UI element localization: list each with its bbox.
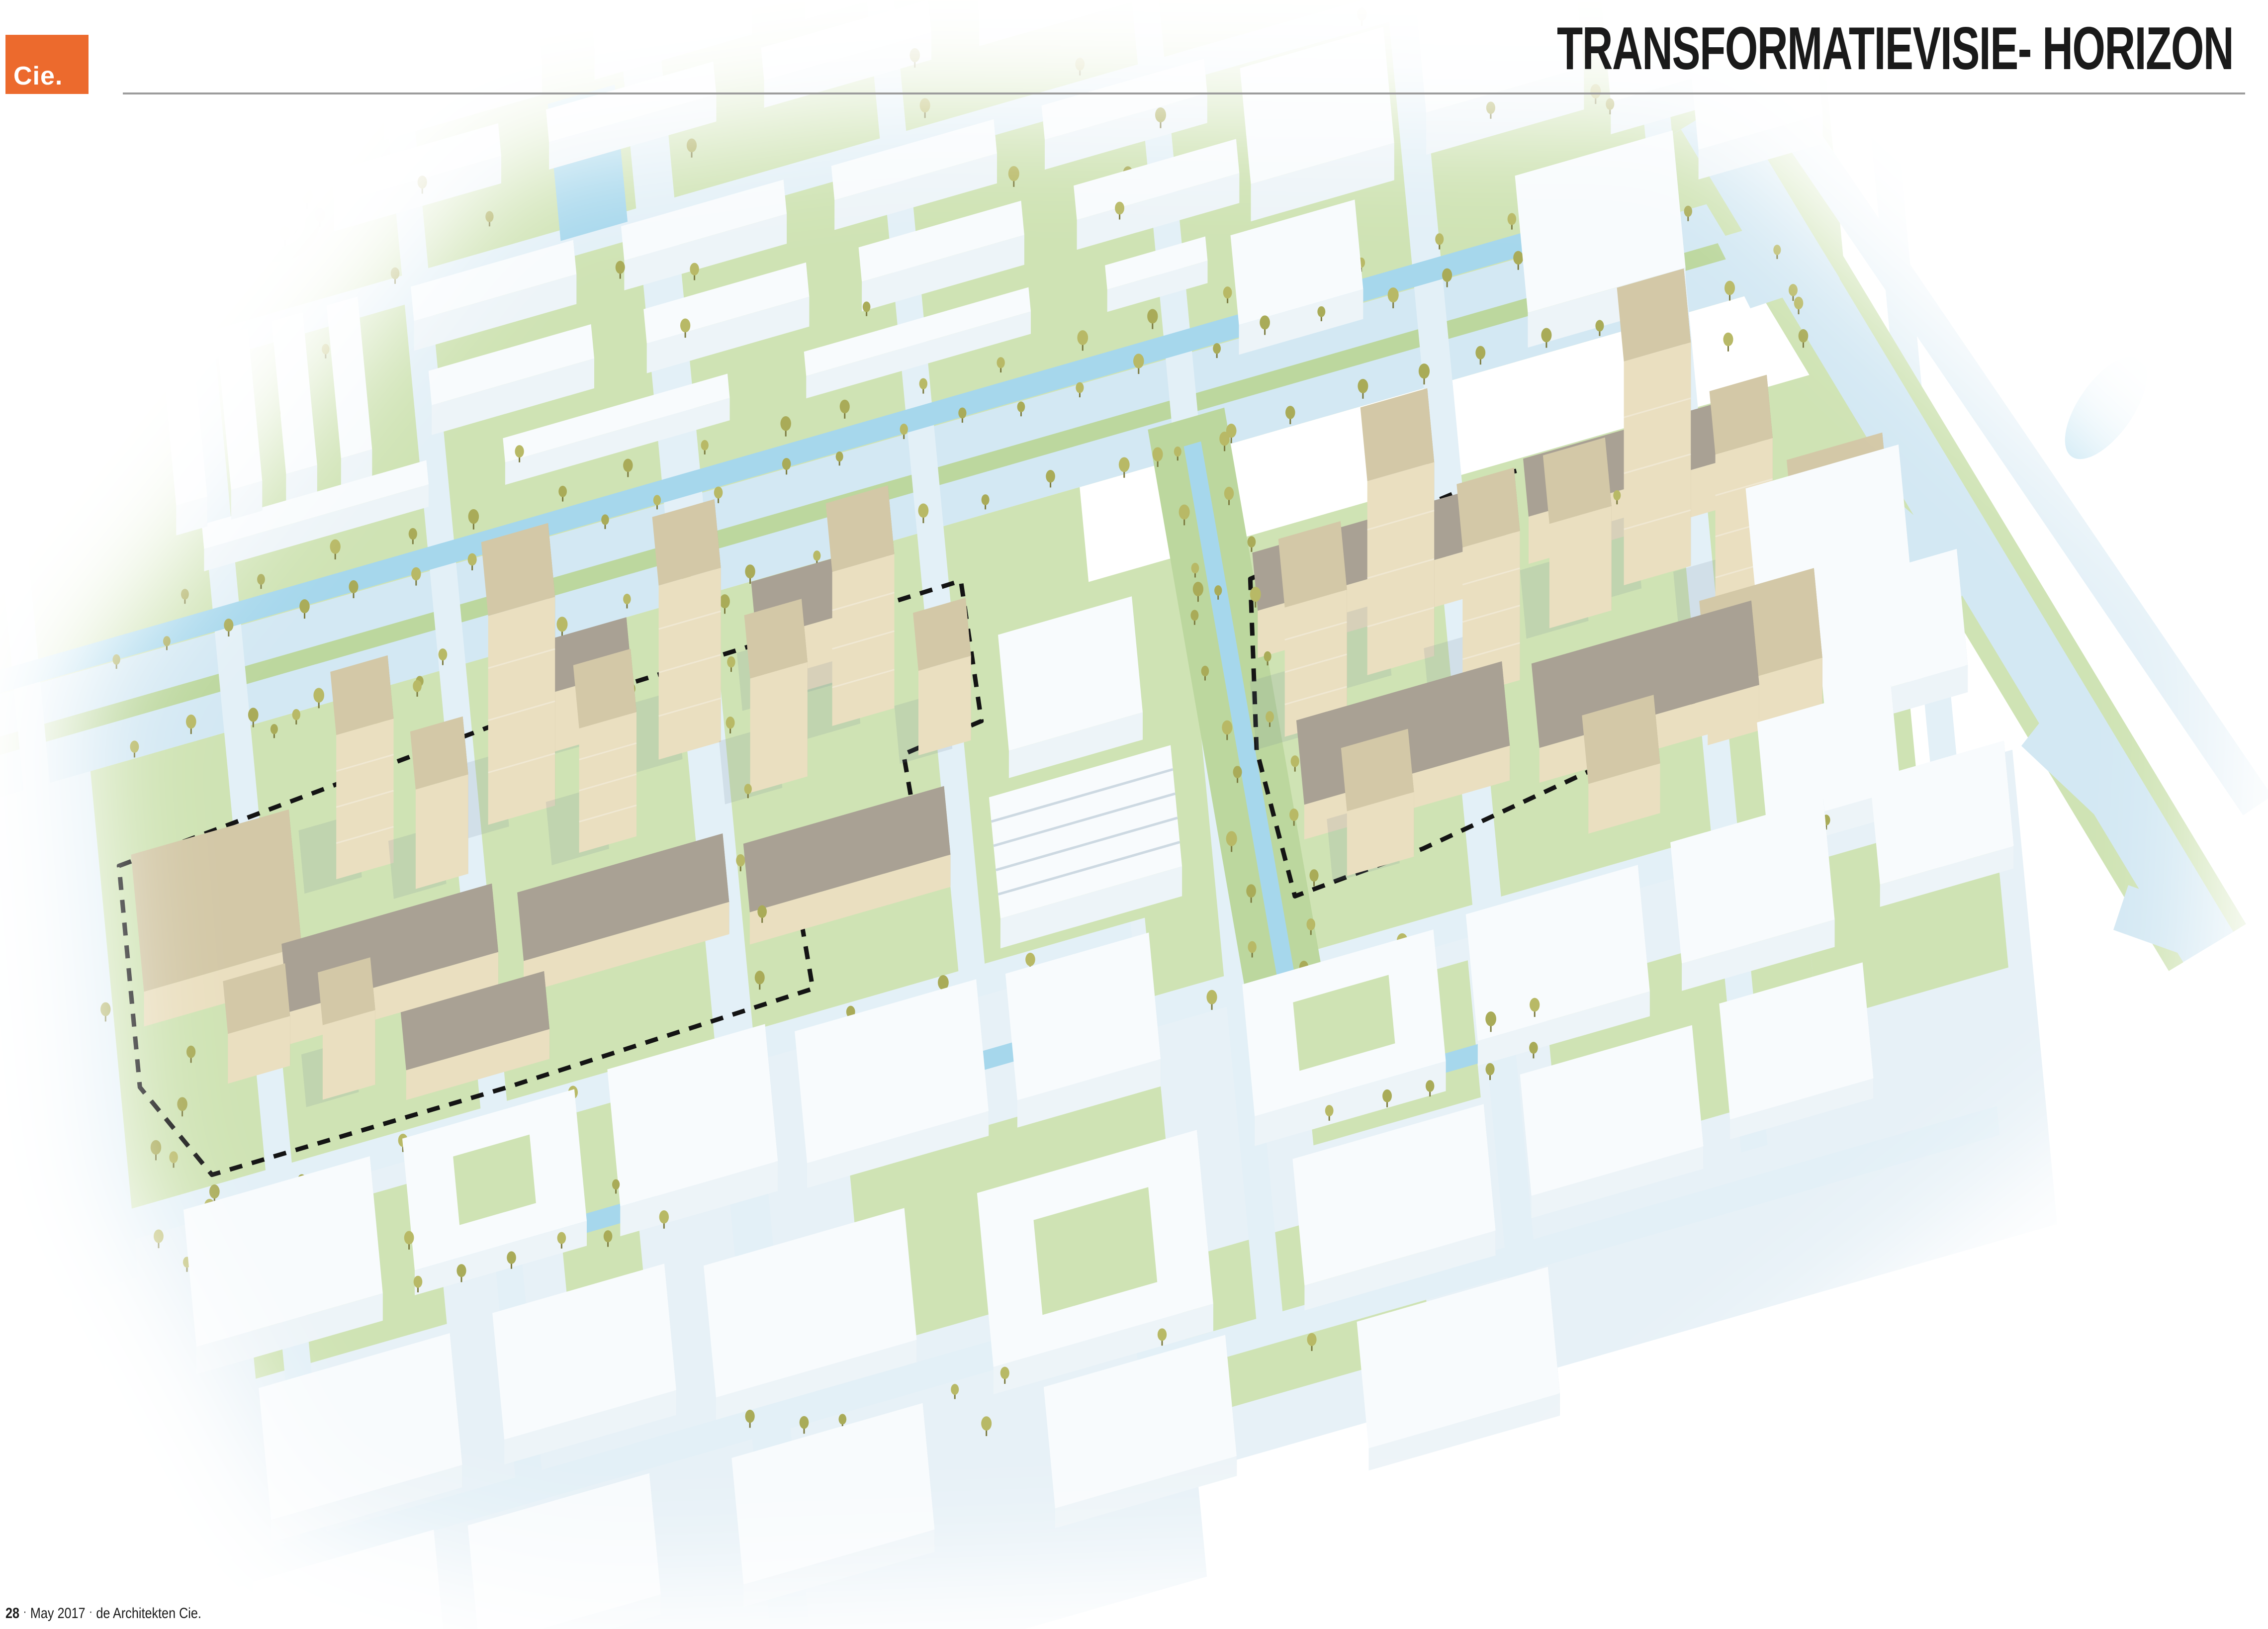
footer: 28·May 2017·de Architekten Cie.	[5, 1605, 201, 1622]
cie-logo: Cie.	[5, 35, 89, 94]
masterplan-3d-map	[0, 0, 2268, 1629]
page-number: 28	[5, 1605, 19, 1622]
footer-date: May 2017	[30, 1605, 86, 1622]
header-rule	[123, 92, 2245, 94]
page-title: TRANSFORMATIEVISIE- HORIZON	[1557, 18, 2233, 79]
cie-logo-text: Cie.	[13, 63, 63, 89]
slide: Cie. TRANSFORMATIEVISIE- HORIZON 28·May …	[0, 0, 2268, 1629]
footer-separator: ·	[19, 1605, 30, 1619]
footer-firm: de Architekten Cie.	[96, 1605, 201, 1622]
footer-separator: ·	[86, 1605, 96, 1619]
